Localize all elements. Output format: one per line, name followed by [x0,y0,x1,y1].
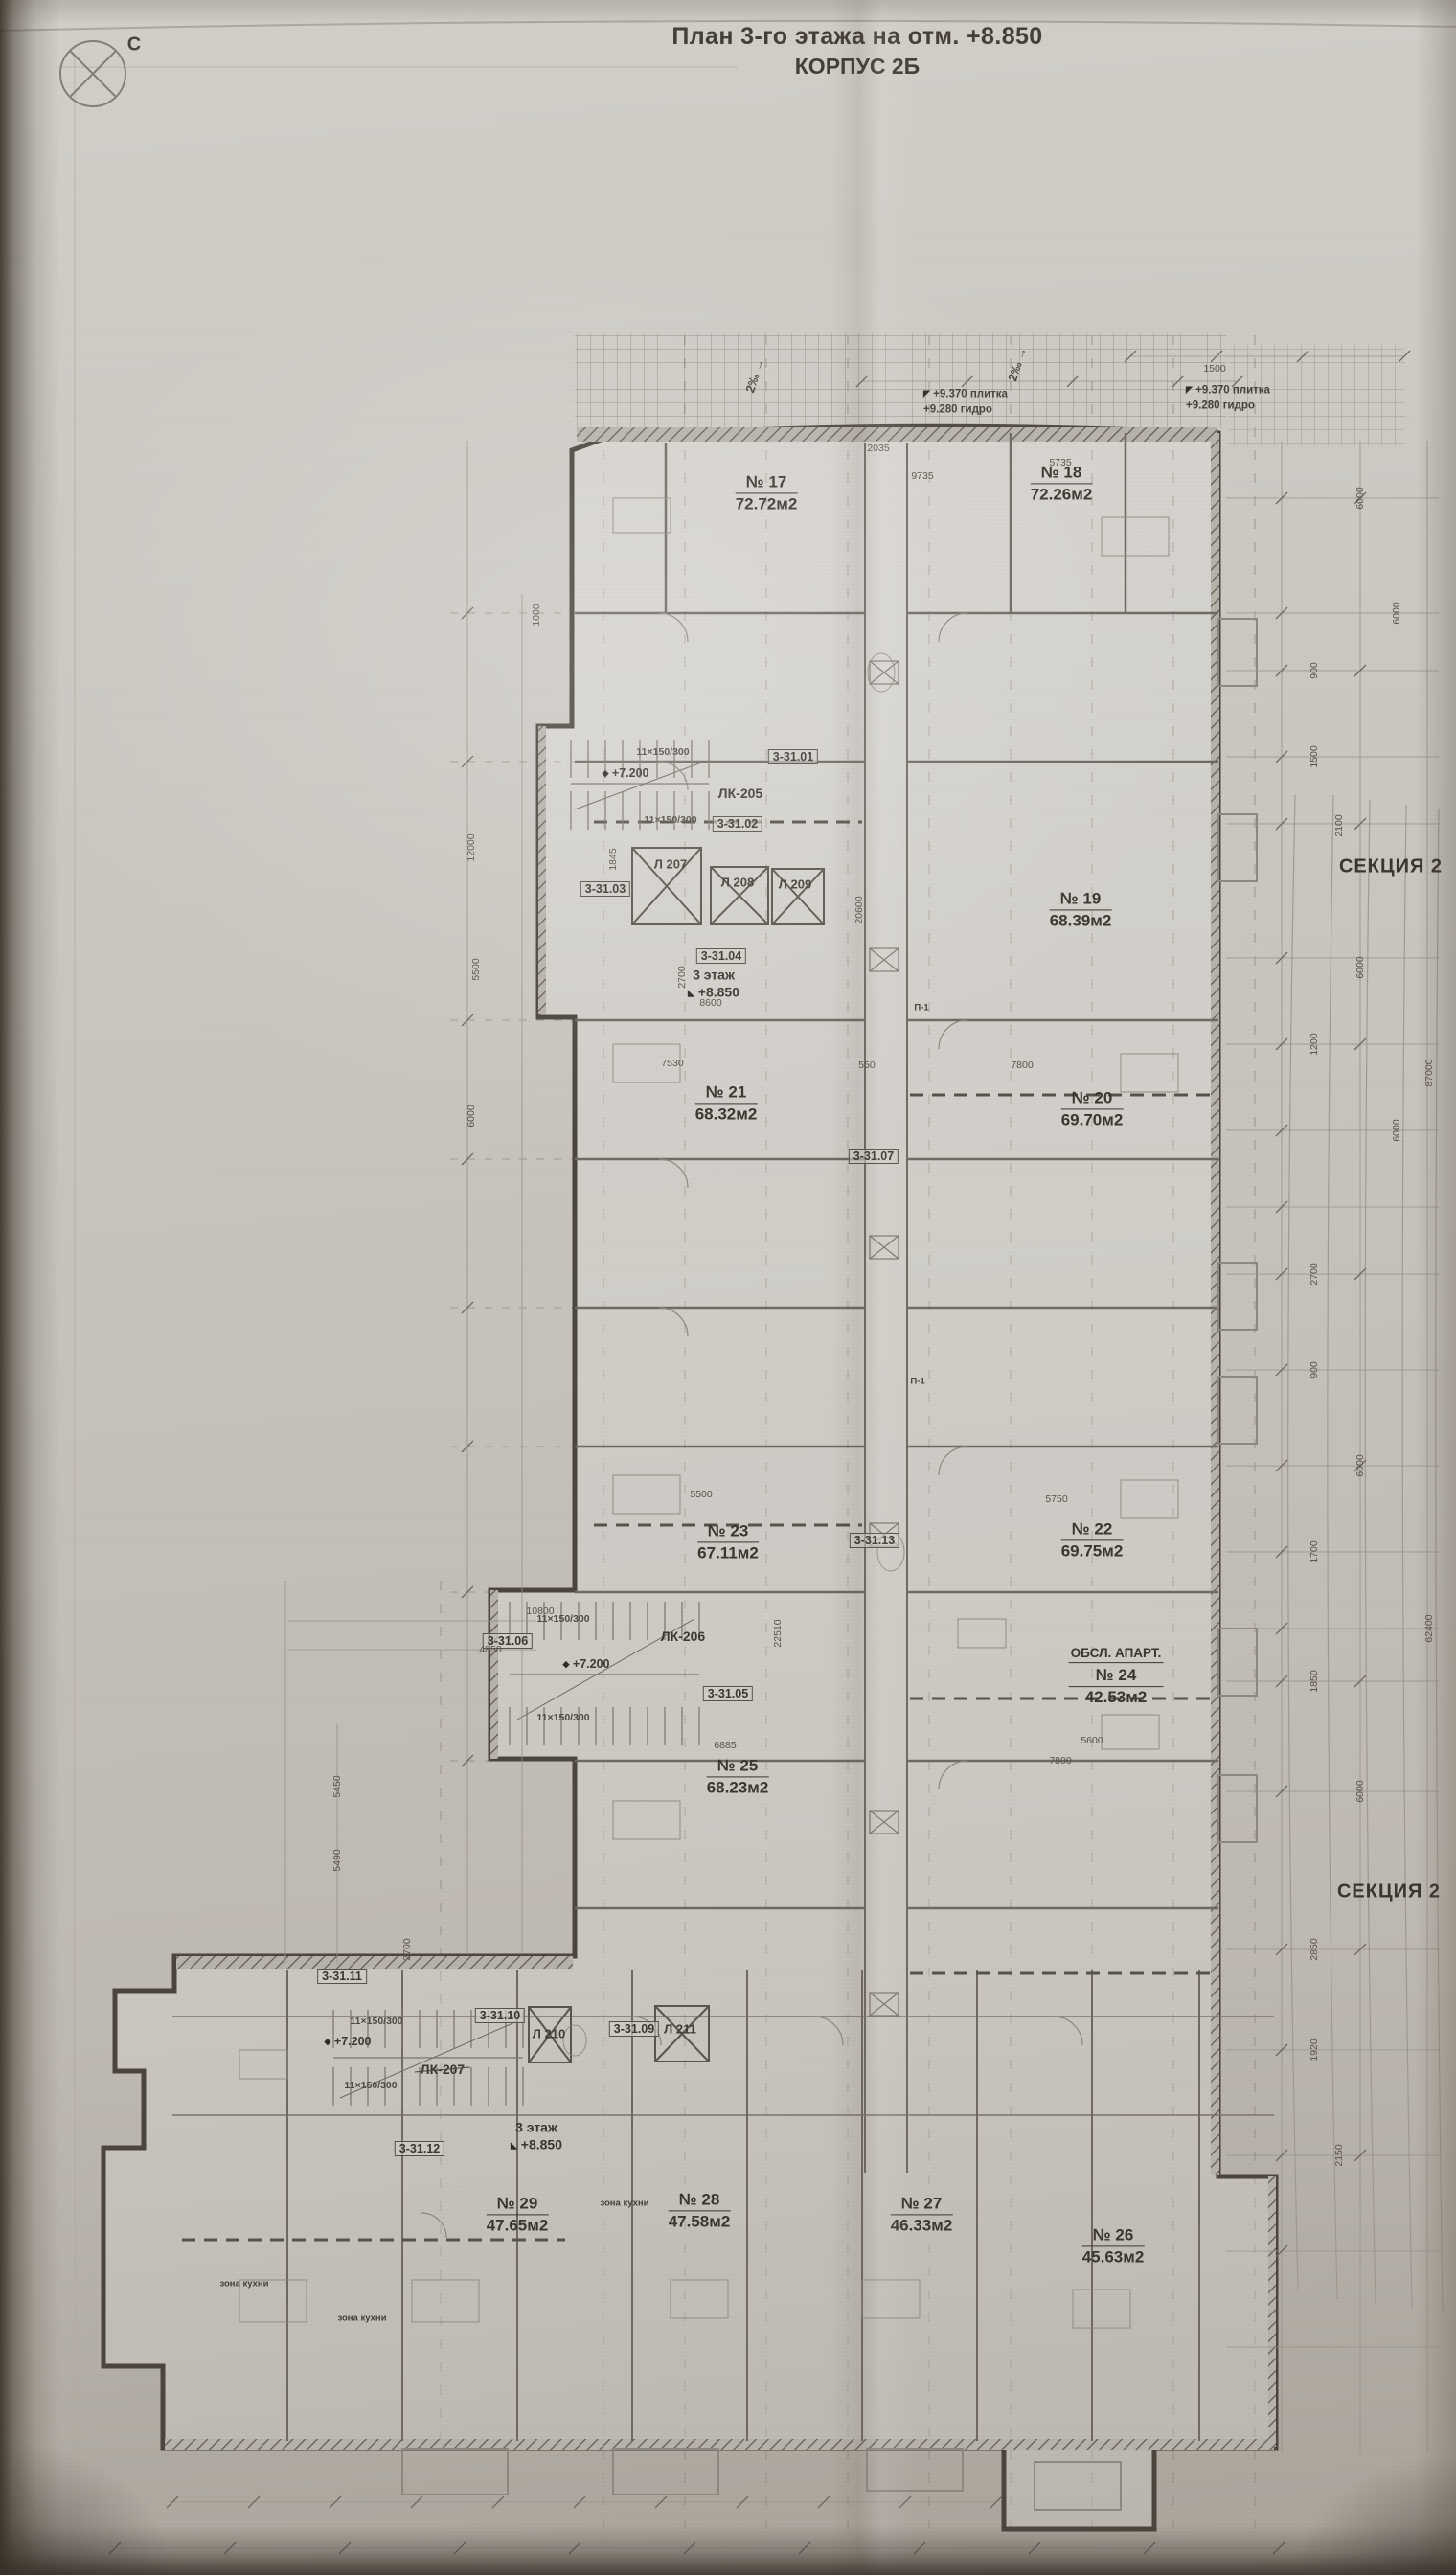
floor-name: 3 этаж [688,968,739,985]
apartment-number: № 21 [695,1082,758,1104]
waterproofing-level: +9.280 гидро [923,402,1008,418]
dimension-text: 550 [858,1060,876,1071]
apartment-area: 68.32м2 [695,1105,758,1126]
elevator-label: Л 207 [654,857,687,872]
tile-level: +9.370 плитка [933,388,1008,399]
elevation-flag-icon: ◣ [688,988,694,997]
dimension-text: 5735 [1049,457,1071,468]
unit-marker: 3-31.04 [696,948,746,964]
dimension-text: 6000 [1354,1780,1366,1802]
apartment-label: № 26 45.63м2 [1082,2224,1145,2267]
title-line-1: План 3-го этажа на отм. +8.850 [671,23,1042,51]
elevation-mark: ◆ +7.200 [325,2035,372,2048]
elevation-flag-icon: ◆ [325,2037,331,2046]
apartment-area: 47.65м2 [487,2216,549,2237]
unit-marker: 3-31.05 [703,1686,753,1701]
sheet-title: План 3-го этажа на отм. +8.850 КОРПУС 2Б [671,23,1042,80]
shaft-label: П-1 [914,1003,928,1014]
drainage-slope-mark: 2‰ → [1005,345,1030,383]
staircase-label: ЛК-205 [718,786,762,801]
elevator-label: Л 211 [664,2022,696,2037]
apartment-label: № 20 69.70м2 [1061,1087,1124,1130]
elevation-flag-icon: ◣ [511,2140,517,2150]
stair-step-note: 11×150/300 [350,2016,402,2027]
dimension-text: 6000 [1354,487,1366,509]
photographed-floor-plan-sheet: План 3-го этажа на отм. +8.850 КОРПУС 2Б… [0,0,1456,2575]
apartment-number: № 19 [1050,888,1112,910]
apartment-area: 45.63м2 [1082,2247,1145,2268]
apartment-area: 42.53м2 [1069,1687,1164,1708]
apartment-area: 69.70м2 [1061,1110,1124,1131]
stair-step-note: 11×150/300 [636,746,689,758]
apartment-label: ОБСЛ. АПАРТ. № 24 42.53м2 [1069,1645,1164,1708]
apartment-area: 46.33м2 [891,2216,953,2237]
apartment-label: № 17 72.72м2 [736,471,798,514]
dimension-text: 5500 [690,1489,712,1500]
elevation-value: +7.200 [573,1657,610,1671]
apartment-number: № 26 [1082,2224,1145,2246]
apartment-label: № 25 68.23м2 [707,1755,769,1798]
dimension-text: 2035 [867,443,889,454]
apartment-number: № 20 [1061,1087,1124,1109]
apartment-label: № 27 46.33м2 [891,2193,953,2236]
dimension-text: 12000 [466,833,477,861]
dimension-text: 1000 [531,604,542,626]
dimension-text: 2700 [676,966,688,988]
drainage-slope-mark: 2‰ → [742,356,767,395]
dimension-text: 6000 [1391,1119,1402,1141]
dimension-text: 4850 [479,1644,501,1655]
unit-marker: 3-31.13 [850,1533,899,1548]
dimension-text: 9735 [911,470,933,482]
apartment-label: № 21 68.32м2 [695,1082,758,1125]
elevation-value: +7.200 [334,2035,372,2048]
dimension-text: 1500 [1203,363,1225,375]
north-letter: С [127,34,141,57]
section-label: СЕКЦИЯ 2 [1339,856,1443,878]
apartment-number: № 23 [697,1520,759,1542]
tile-level: +9.370 плитка [1195,384,1270,396]
dimension-text: 7800 [1011,1060,1033,1071]
dimension-text: 1845 [607,848,619,870]
floor-name: 3 этаж [511,2120,562,2137]
dimension-text: 6000 [1391,602,1402,624]
dimension-text: 2700 [1308,1263,1320,1285]
elevation-flag-icon: ◤ [1186,384,1193,394]
apartment-area: 47.58м2 [669,2212,731,2233]
shaft-label: П-1 [910,1377,924,1387]
waterproofing-level: +9.280 гидро [1186,399,1270,414]
elevator-label: Л 210 [533,2027,565,2041]
unit-marker: 3-31.03 [580,881,630,897]
apartment-area: 72.26м2 [1031,485,1093,506]
dimension-text: 5490 [331,1849,343,1871]
apartment-number: № 17 [736,471,798,493]
dimension-text: 1700 [1308,1540,1320,1562]
stair-step-note: 11×150/300 [536,1712,589,1723]
apartment-label: № 28 47.58м2 [669,2189,731,2232]
floor-level-mark: 3 этаж ◣ +8.850 [511,2120,562,2153]
dimension-text: 22510 [772,1619,784,1647]
apartment-area: 68.23м2 [707,1778,769,1799]
dimension-text: 5450 [331,1775,343,1797]
dimension-text: 5750 [1045,1493,1067,1505]
apartment-number: № 28 [669,2189,731,2211]
dimension-text: 6000 [1354,956,1366,978]
tile-elevation-note: ◤ +9.370 плитка +9.280 гидро [1186,383,1270,413]
dimension-text: 5600 [1081,1735,1103,1746]
apartment-number: № 22 [1061,1518,1124,1540]
dimension-text: 6885 [714,1740,736,1751]
stair-step-note: 11×150/300 [644,814,696,826]
dimension-text: 1850 [1308,1670,1320,1692]
apartment-label: № 18 72.26м2 [1031,462,1093,505]
dimension-text: 2100 [1333,814,1345,836]
kitchen-zone-label: зона кухни [220,2279,269,2290]
dimension-text: 10800 [526,1606,554,1617]
dimension-text: 6000 [466,1105,477,1127]
kitchen-zone-label: зона кухни [601,2199,649,2209]
dimension-text: 900 [1308,1361,1320,1379]
unit-marker: 3-31.07 [849,1149,899,1164]
dimension-text: 62400 [1423,1614,1435,1642]
apartment-number: № 24 [1069,1665,1164,1687]
apartment-area: 68.39м2 [1050,911,1112,932]
unit-marker: 3-31.09 [609,2021,659,2037]
section-label: СЕКЦИЯ 2 [1337,1881,1441,1903]
floor-level-mark: 3 этаж ◣ +8.850 [688,968,739,1001]
staircase-label: ЛК-206 [661,1629,705,1644]
elevation-flag-icon: ◆ [603,768,609,778]
dimension-text: 7530 [661,1058,683,1069]
apartment-label: № 19 68.39м2 [1050,888,1112,931]
apartment-label: № 23 67.11м2 [697,1520,759,1563]
unit-marker: 3-31.11 [317,1969,367,1984]
apartment-number: № 27 [891,2193,953,2215]
apartment-label: № 29 47.65м2 [487,2193,549,2236]
dimension-text: 1500 [1308,745,1320,767]
elevation-mark: ◆ +7.200 [563,1657,610,1671]
floor-elevation: +8.850 [521,2136,562,2152]
dimension-text: 87000 [1423,1059,1435,1086]
dimension-text: 8600 [699,997,721,1009]
dimension-text: 2850 [1308,1938,1320,1960]
elevator-label: Л 209 [779,877,811,892]
stair-step-note: 11×150/300 [344,2080,397,2091]
apartment-number: № 25 [707,1755,769,1777]
apartment-area: 69.75м2 [1061,1541,1124,1562]
dimension-text: 5500 [470,958,482,980]
unit-marker: 3-31.02 [713,816,762,832]
elevation-flag-icon: ◆ [563,1659,570,1669]
apartment-area: 67.11м2 [697,1543,759,1564]
apartment-label: № 22 69.75м2 [1061,1518,1124,1561]
dimension-text: 1920 [1308,2039,1320,2061]
dimension-text: 6000 [1354,1454,1366,1476]
elevator-label: Л 208 [721,876,754,890]
dimension-text: 7800 [1049,1755,1071,1766]
title-line-2: КОРПУС 2Б [671,54,1042,80]
unit-marker: 3-31.12 [395,2141,444,2156]
dimension-text: 2150 [1333,2144,1345,2166]
dimension-text: 20600 [853,896,865,923]
apartment-area: 72.72м2 [736,494,798,515]
dimension-text: 1200 [1308,1033,1320,1055]
kitchen-zone-label: зона кухни [338,2313,387,2324]
tile-elevation-note: ◤ +9.370 плитка +9.280 гидро [923,387,1008,417]
unit-marker: 3-31.01 [768,749,818,764]
unit-marker: 3-31.10 [475,2008,525,2023]
elevation-flag-icon: ◤ [923,388,930,398]
apartment-note: ОБСЛ. АПАРТ. [1069,1645,1164,1663]
apartment-number: № 29 [487,2193,549,2215]
elevation-mark: ◆ +7.200 [603,766,649,780]
dimension-text: 900 [1308,662,1320,679]
plan-annotations: План 3-го этажа на отм. +8.850 КОРПУС 2Б… [0,0,1456,2575]
dimension-text: 2700 [401,1938,413,1960]
staircase-label: ЛК-207 [421,2062,465,2077]
elevation-value: +7.200 [612,766,649,780]
